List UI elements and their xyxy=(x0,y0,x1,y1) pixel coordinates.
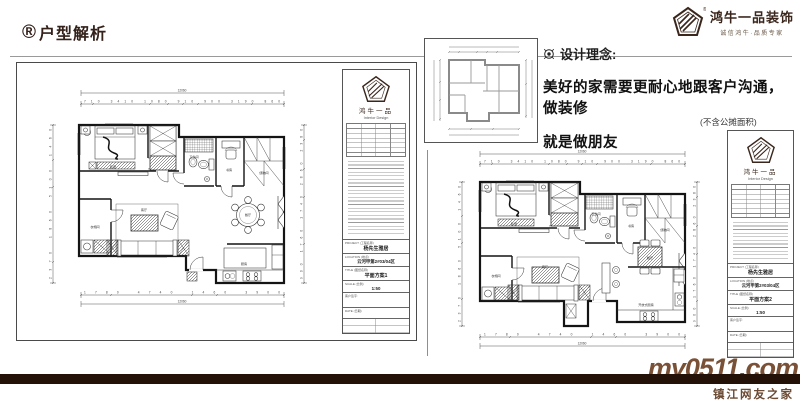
dim-left-segments: 2370 1860 5100 1460 xyxy=(458,186,462,322)
project-row: PROJECT (工程名称) 杨先生雅居 xyxy=(728,263,793,277)
pentagon-logo-icon xyxy=(746,136,776,164)
plan1-bath xyxy=(185,139,214,182)
watermark-site: my0511.com xyxy=(648,353,798,374)
location-row: LOCATION (地点) 云河甲第2#03/04区 xyxy=(343,253,409,266)
plan1-kitchen xyxy=(187,245,284,281)
room-label-study: 书房 xyxy=(226,167,232,172)
room-label-storage: 储物间 xyxy=(660,227,669,232)
brand-reg-mark: ® xyxy=(703,6,706,13)
pentagon-logo-icon xyxy=(361,75,391,103)
target-bullet-icon xyxy=(543,48,555,60)
dim-right-segments: 900 1760 1740 2860 2380 xyxy=(300,129,304,279)
section-divider-line xyxy=(427,150,428,356)
page: ® 户型解析 ® 鸿牛一品装饰 诚信鸿牛·品质专家 xyxy=(0,0,800,403)
coffee-table xyxy=(532,267,559,283)
chair xyxy=(627,207,637,216)
room-label-bath: 卫生间 xyxy=(591,211,600,216)
revision-table xyxy=(346,123,406,157)
plan1-cloakroom xyxy=(81,240,109,253)
brand-logo: ® 鸿牛一品装饰 诚信鸿牛·品质专家 xyxy=(672,5,794,39)
floor-plan-1: 12060 710 3410 1080 910 900 3190 860 178… xyxy=(17,63,347,340)
plan2-bar xyxy=(602,263,620,293)
shared-area-note: (不含公摊面积) xyxy=(700,116,757,128)
plan1-study xyxy=(222,137,284,186)
accent-chair xyxy=(561,263,580,283)
room-label-bedroom: 卧室 xyxy=(110,164,116,169)
page-title: ® 户型解析 xyxy=(22,20,107,44)
dim-right-segments: 900 1760 1740 2860 2380 xyxy=(693,186,697,322)
room-label-storage: 储物间 xyxy=(259,170,268,175)
title-block-brand-en: Interior Design xyxy=(728,177,793,181)
entry-mat xyxy=(586,196,613,209)
room-label-cloak: 衣帽间 xyxy=(491,273,500,278)
plan1-living xyxy=(107,172,189,256)
date-row: DATE (日期) xyxy=(343,307,409,318)
drawing-title: 平面方案2 xyxy=(730,296,791,303)
shoe-cabinet xyxy=(187,272,197,281)
dim-top-total: 12060 xyxy=(178,89,187,93)
tv xyxy=(118,172,148,176)
mini-walls xyxy=(449,60,519,121)
dim-bottom-segments: 1780 4740 1460 3900 xyxy=(84,291,280,295)
drawing-title-row: TITLE (图纸名称) 平面方案2 xyxy=(728,290,793,304)
title-block-logo xyxy=(728,136,793,164)
room-label-dining: 餐厅 xyxy=(245,212,251,217)
scale-value: 1:50 xyxy=(345,286,407,291)
title-block-brand-cn: 鸿牛一品 xyxy=(343,105,409,115)
notes-block xyxy=(348,161,404,235)
room-label-living: 客厅 xyxy=(141,207,147,212)
entry-mat xyxy=(185,139,213,152)
plan2-kitchen xyxy=(617,267,685,321)
sofa xyxy=(120,241,174,255)
plan2-bedroom xyxy=(482,183,548,226)
title-block-brand-cn: 鸿牛一品 xyxy=(728,166,793,176)
mini-floor-plan xyxy=(425,39,537,142)
mini-plan-sheet xyxy=(424,38,538,143)
revision-table xyxy=(731,184,790,218)
location-name: 云河甲第2#03/04区 xyxy=(345,259,407,265)
toilet-tank xyxy=(209,159,214,170)
dim-top-total: 12060 xyxy=(578,150,587,154)
dim-bottom-total: 12060 xyxy=(178,300,187,304)
room-label-cloak: 衣帽间 xyxy=(90,224,99,229)
plan2-study xyxy=(623,194,685,243)
title-block-brand-en: Interior Design xyxy=(343,116,409,120)
drawing-title: 平面方案1 xyxy=(345,272,407,279)
concept-line-1: 美好的家需要更耐心地跟客户沟通，做装修 xyxy=(543,76,795,118)
brand-slogan: 诚信鸿牛·品质专家 xyxy=(720,28,784,37)
coffee-table xyxy=(131,215,158,231)
notes-block xyxy=(733,222,788,259)
sofa xyxy=(521,286,575,300)
title-block-1: 鸿牛一品 Interior Design PROJECT (工程名称) 杨先生雅… xyxy=(342,69,410,334)
scale-value: 1:50 xyxy=(730,310,791,315)
fridge xyxy=(674,269,684,282)
room-label-bath: 卫生间 xyxy=(189,154,198,159)
dim-top-segments: 710 3410 1080 910 900 3190 860 xyxy=(484,160,680,164)
brand-name: 鸿牛一品装饰 xyxy=(710,7,794,26)
plan2-dimensions xyxy=(459,151,700,349)
project-name: 杨先生雅居 xyxy=(730,269,791,276)
plan2-living xyxy=(508,229,590,301)
tv xyxy=(519,229,549,233)
title-block-footer-grid xyxy=(343,318,409,333)
plan1-wardrobe xyxy=(150,126,176,170)
location-name: 云河甲第2#03/04区 xyxy=(730,283,791,289)
toilet-tank xyxy=(610,216,615,227)
room-label-kitchen: 厨房 xyxy=(241,261,247,266)
registered-mark-icon: ® xyxy=(22,23,36,42)
room-label-kitchen: 开放式厨房 xyxy=(638,302,653,307)
room-label-bedroom: 卧室 xyxy=(511,221,517,226)
bar-counter xyxy=(602,263,610,293)
title-block-logo xyxy=(343,75,409,103)
date-row: DATE (日期) xyxy=(728,331,793,342)
location-row: LOCATION (地点) 云河甲第2#03/04区 xyxy=(728,277,793,290)
dim-top-segments: 710 3410 1080 910 900 3190 860 xyxy=(84,100,280,104)
plan2-cloakroom xyxy=(482,287,510,300)
dim-left-segments: 2370 1860 5100 1460 xyxy=(49,129,53,279)
plan1-sheet: 12060 710 3410 1080 910 900 3190 860 178… xyxy=(16,62,417,341)
project-name: 杨先生雅居 xyxy=(345,245,407,252)
title-block-2: 鸿牛一品 Interior Design PROJECT (工程名称) 杨先生雅… xyxy=(727,130,794,358)
room-label-living: 客厅 xyxy=(542,264,548,269)
client-sign-row: 客户签字: xyxy=(343,292,409,307)
scale-row: SCALE (比例) 1:50 xyxy=(343,280,409,292)
page-title-text: 户型解析 xyxy=(39,20,107,44)
scale-row: SCALE (比例) 1:50 xyxy=(728,304,793,316)
plan2-bath xyxy=(586,196,615,239)
dim-bottom-segments: 1780 4740 1460 3900 xyxy=(484,333,680,337)
client-sign-row: 客户签字: xyxy=(728,316,793,331)
dim-bottom-total: 12060 xyxy=(578,342,587,346)
bottom-bar xyxy=(0,374,800,384)
stove xyxy=(640,311,658,321)
chair xyxy=(226,150,236,159)
pentagon-logo-icon: ® xyxy=(672,5,706,39)
floor-plan-2: 12060 710 3410 1080 910 900 3190 860 178… xyxy=(450,147,730,372)
room-label-dining: 餐厅 xyxy=(647,255,653,260)
plan2-wardrobe xyxy=(551,183,578,226)
watermark-name: 镇江网友之家 xyxy=(713,386,794,402)
drawing-title-row: TITLE (图纸名称) 平面方案1 xyxy=(343,266,409,280)
room-label-study: 书房 xyxy=(628,223,634,228)
stove xyxy=(243,271,261,281)
project-row: PROJECT (工程名称) 杨先生雅居 xyxy=(343,239,409,253)
plan2-balcony xyxy=(566,304,576,318)
plan1-bedroom xyxy=(81,126,147,169)
design-concept-heading: 设计理念: xyxy=(543,44,795,63)
fridge xyxy=(272,245,283,269)
accent-chair xyxy=(160,211,179,231)
brand-text: 鸿牛一品装饰 诚信鸿牛·品质专家 xyxy=(710,7,794,37)
